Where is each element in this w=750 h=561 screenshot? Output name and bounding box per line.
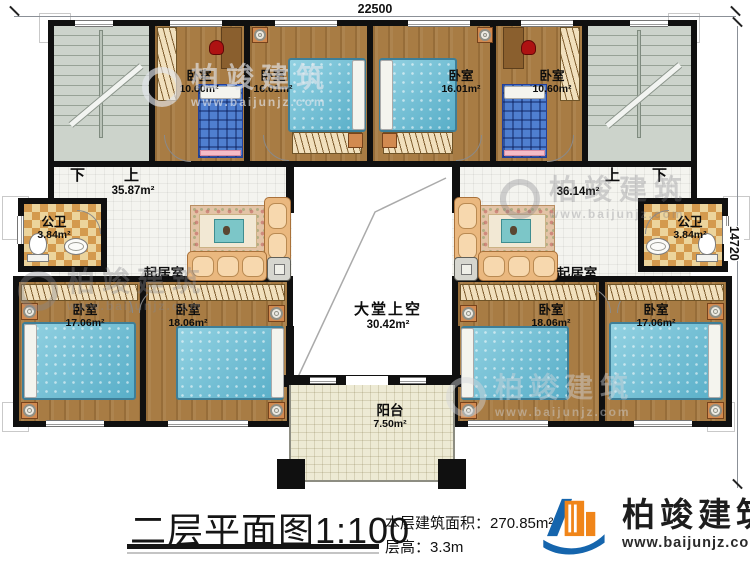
wall <box>452 326 460 378</box>
lamp <box>479 29 491 41</box>
floor-area-label: 本层建筑面积： <box>385 515 490 532</box>
dimension-line-top <box>14 16 736 17</box>
nightstand <box>348 133 363 148</box>
room-label: 公卫 3.84m² <box>673 216 706 241</box>
toilet-tank <box>696 254 718 262</box>
tv <box>454 257 478 281</box>
stair-up-label: 上 <box>124 164 139 185</box>
blanket <box>504 150 545 156</box>
room-label-living-left: 起居室 <box>144 262 185 282</box>
dimension-label-right: 14720 <box>724 226 744 261</box>
sofa-cushion <box>268 203 287 229</box>
floorplan-canvas: 卧室 10.60m² 卧室 16.01m² 卧室 16.01m² 卧室 10.6… <box>0 0 750 561</box>
brand-name: 柏竣建筑 <box>622 498 750 531</box>
room-label: 卧室 10.60m² <box>532 70 571 95</box>
wardrobe <box>607 284 724 301</box>
tv <box>267 257 291 281</box>
window <box>521 20 573 27</box>
window <box>168 420 248 427</box>
room-name: 卧室 <box>179 70 218 84</box>
hall-void-area <box>292 159 452 385</box>
window <box>46 420 104 427</box>
pillow <box>24 324 37 398</box>
brand-website: www.baijunjz.com <box>622 535 750 551</box>
wardrobe <box>460 284 597 301</box>
room-area: 16.01m² <box>441 84 480 96</box>
sofa-chaise <box>264 197 291 263</box>
dimension-label-top: 22500 <box>355 2 396 16</box>
sofa <box>187 251 267 281</box>
window <box>275 20 337 27</box>
sofa-cushion <box>483 256 505 277</box>
sofa-cushion <box>268 233 287 259</box>
sofa-cushion <box>242 256 264 277</box>
stair-down-label: 下 <box>652 164 667 185</box>
sink <box>646 238 670 255</box>
room-area: 3.84m² <box>673 230 706 242</box>
pillow <box>271 328 284 398</box>
room-label: 卧室 18.06m² <box>168 304 207 329</box>
wardrobe <box>148 284 285 301</box>
lamp <box>270 307 283 320</box>
void-diagonal-line <box>292 159 452 385</box>
balcony-window <box>400 377 426 384</box>
window <box>170 20 222 27</box>
sofa-cushion <box>192 256 214 277</box>
window <box>630 20 668 27</box>
lamp <box>23 305 36 318</box>
room-area: 16.01m² <box>253 84 292 96</box>
lamp <box>254 29 266 41</box>
room-label-living-right: 起居室 <box>557 262 598 282</box>
sofa-cushion <box>458 203 477 229</box>
pillow <box>461 328 474 398</box>
blanket <box>200 150 241 156</box>
room-label: 卧室 17.06m² <box>636 304 675 329</box>
room-label: 公卫 3.84m² <box>37 216 70 241</box>
wardrobe <box>157 27 177 101</box>
sofa-cushion <box>458 233 477 259</box>
stair-rail-right <box>637 30 641 138</box>
lamp <box>709 305 722 318</box>
floor-height-note: 层高：3.3m <box>385 536 463 557</box>
pillow <box>352 60 365 130</box>
lamp <box>23 404 36 417</box>
room-area: 10.60m² <box>179 84 218 96</box>
room-name: 卧室 <box>253 70 292 84</box>
room-label: 卧室 17.06m² <box>65 304 104 329</box>
coffee-table <box>214 219 244 243</box>
sofa <box>478 251 558 281</box>
chair <box>209 40 224 55</box>
room-area: 10.60m² <box>532 84 571 96</box>
room-label-hall-void: 大堂上空 30.42m² <box>354 302 422 331</box>
room-area: 17.06m² <box>636 318 675 330</box>
room-name: 大堂上空 <box>354 302 422 319</box>
stair-up-label: 上 <box>605 164 620 185</box>
sofa-cushion <box>533 256 555 277</box>
double-bed <box>22 322 136 400</box>
room-name: 阳台 <box>373 404 406 419</box>
room-label: 卧室 18.06m² <box>531 304 570 329</box>
room-area: 18.06m² <box>168 318 207 330</box>
room-area: 7.50m² <box>373 419 406 431</box>
room-label: 卧室 16.01m² <box>441 70 480 95</box>
pillow <box>708 324 721 398</box>
hall-area-left: 35.87m² <box>112 185 155 197</box>
lamp <box>462 404 475 417</box>
sofa-chaise <box>454 197 481 263</box>
room-area: 3.84m² <box>37 230 70 242</box>
double-bed <box>176 326 284 400</box>
floor-height-value: 3.3m <box>430 539 463 556</box>
pillow <box>380 60 393 130</box>
room-name: 卧室 <box>168 304 207 318</box>
floor-height-label: 层高： <box>385 539 430 556</box>
balcony-pillar <box>438 459 466 489</box>
dimension-tick <box>730 6 741 17</box>
double-bed <box>609 322 723 400</box>
room-area: 18.06m² <box>531 318 570 330</box>
room-name: 卧室 <box>65 304 104 318</box>
room-name: 公卫 <box>673 216 706 230</box>
room-area: 30.42m² <box>354 319 422 332</box>
balcony-floor <box>289 385 455 482</box>
lamp <box>709 404 722 417</box>
room-label-balcony: 阳台 7.50m² <box>373 404 406 430</box>
window <box>75 20 113 27</box>
room-label: 卧室 16.01m² <box>253 70 292 95</box>
window <box>468 420 548 427</box>
wardrobe <box>21 284 138 301</box>
coffee-table <box>501 219 531 243</box>
toilet-tank <box>27 254 49 262</box>
nightstand <box>382 133 397 148</box>
balcony-pillar <box>277 459 305 489</box>
chair <box>521 40 536 55</box>
window <box>634 420 692 427</box>
wall <box>286 326 294 378</box>
room-label: 卧室 10.60m² <box>179 70 218 95</box>
brand-logo-icon <box>534 492 612 556</box>
room-name: 卧室 <box>441 70 480 84</box>
sofa-cushion <box>508 256 530 277</box>
hall-area-right: 36.14m² <box>557 186 600 198</box>
double-bed <box>461 326 569 400</box>
window <box>408 20 470 27</box>
title-underline <box>127 544 379 549</box>
desk <box>221 27 242 69</box>
room-name: 卧室 <box>532 70 571 84</box>
room-name: 卧室 <box>531 304 570 318</box>
window <box>17 216 24 244</box>
lamp <box>462 307 475 320</box>
brand-logo: 柏竣建筑 www.baijunjz.com <box>534 492 750 556</box>
wall <box>48 161 54 201</box>
stair-down-label: 下 <box>70 164 85 185</box>
dimension-tick <box>9 6 20 17</box>
stair-rail-left <box>99 30 103 138</box>
sofa-cushion <box>217 256 239 277</box>
lamp <box>270 404 283 417</box>
balcony-window <box>310 377 336 384</box>
room-name: 公卫 <box>37 216 70 230</box>
title-underline-shadow <box>127 552 379 554</box>
room-name: 卧室 <box>636 304 675 318</box>
floor-area-note: 本层建筑面积：270.85m² <box>385 512 553 533</box>
wall <box>691 161 697 201</box>
room-area: 17.06m² <box>65 318 104 330</box>
